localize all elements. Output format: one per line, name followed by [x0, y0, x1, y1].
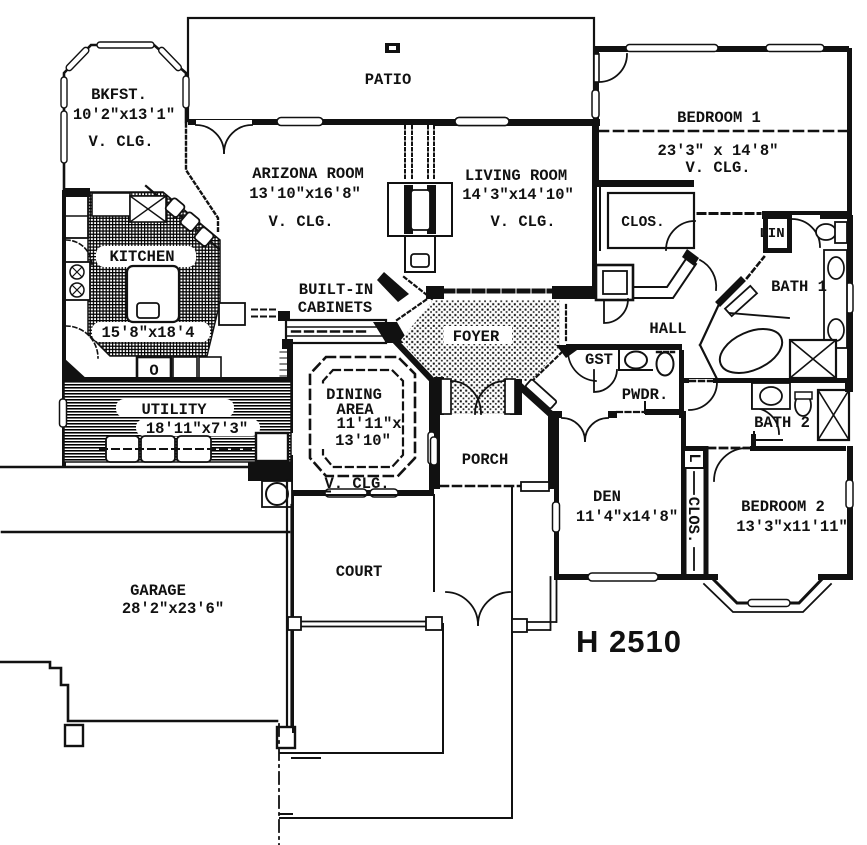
svg-text:V. CLG.: V. CLG.	[88, 133, 153, 151]
svg-text:L: L	[685, 453, 703, 462]
svg-text:11'4"x14'8": 11'4"x14'8"	[576, 508, 678, 526]
svg-text:BUILT-IN: BUILT-IN	[299, 281, 373, 299]
svg-text:H 2510: H 2510	[576, 624, 682, 659]
svg-text:13'10": 13'10"	[335, 432, 391, 450]
svg-text:11'11"x: 11'11"x	[336, 415, 401, 433]
svg-text:23'3" x 14'8": 23'3" x 14'8"	[658, 142, 779, 160]
svg-text:GARAGE: GARAGE	[130, 582, 186, 600]
svg-text:FOYER: FOYER	[453, 328, 500, 346]
svg-text:BEDROOM 2: BEDROOM 2	[741, 498, 825, 516]
svg-text:V. CLG.: V. CLG.	[490, 213, 555, 231]
svg-text:ARIZONA ROOM: ARIZONA ROOM	[252, 165, 364, 183]
svg-text:13'3"x11'11": 13'3"x11'11"	[736, 518, 848, 536]
svg-text:LIN: LIN	[759, 226, 784, 242]
svg-text:KITCHEN: KITCHEN	[109, 248, 174, 266]
svg-text:PATIO: PATIO	[365, 71, 412, 89]
svg-text:DEN: DEN	[593, 488, 621, 506]
svg-text:V. CLG.: V. CLG.	[268, 213, 333, 231]
svg-text:BATH 2: BATH 2	[754, 414, 810, 432]
svg-text:COURT: COURT	[336, 563, 383, 581]
svg-text:15'8"x18'4: 15'8"x18'4	[101, 324, 194, 342]
svg-text:BATH 1: BATH 1	[771, 278, 827, 296]
svg-text:BKFST.: BKFST.	[91, 86, 147, 104]
svg-text:V. CLG.: V. CLG.	[324, 475, 389, 493]
svg-text:BEDROOM 1: BEDROOM 1	[677, 109, 761, 127]
svg-text:CLOS.: CLOS.	[621, 215, 665, 231]
svg-text:LIVING ROOM: LIVING ROOM	[465, 167, 567, 185]
svg-text:14'3"x14'10": 14'3"x14'10"	[462, 186, 574, 204]
svg-text:CABINETS: CABINETS	[298, 299, 372, 317]
svg-text:UTILITY: UTILITY	[141, 401, 207, 419]
svg-text:PORCH: PORCH	[462, 451, 509, 469]
svg-text:28'2"x23'6": 28'2"x23'6"	[122, 600, 224, 618]
svg-text:10'2"x13'1": 10'2"x13'1"	[73, 106, 175, 124]
svg-text:HALL: HALL	[649, 320, 686, 338]
svg-text:V. CLG.: V. CLG.	[685, 159, 750, 177]
svg-text:13'10"x16'8": 13'10"x16'8"	[249, 185, 361, 203]
svg-text:GST: GST	[585, 351, 613, 369]
svg-text:CLOS.: CLOS.	[684, 497, 702, 544]
